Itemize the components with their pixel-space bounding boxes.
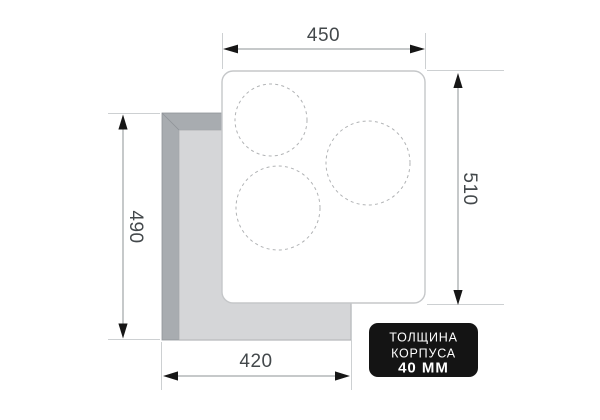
- dimension-label-top: 450: [307, 25, 340, 46]
- dimension-label-left: 490: [125, 210, 146, 243]
- arrowhead-down-icon: [453, 290, 462, 305]
- cooktop-panel: [222, 71, 425, 303]
- diagram-svg: 450 510 490 420 ТОЛЩИНА КОРПУСА: [0, 0, 600, 420]
- thickness-badge: ТОЛЩИНА КОРПУСА 40 ММ: [369, 323, 478, 377]
- arrowhead-up-icon: [453, 73, 462, 88]
- arrowhead-right-icon: [335, 371, 350, 380]
- arrowhead-left-icon: [223, 45, 238, 54]
- arrowhead-up-icon: [118, 115, 127, 130]
- dimension-top: 450: [223, 25, 425, 53]
- dimension-label-right: 510: [459, 172, 480, 205]
- dimension-left: 490: [118, 115, 146, 339]
- thickness-badge-line3: 40 ММ: [398, 360, 449, 377]
- dimension-label-bottom: 420: [239, 351, 272, 372]
- arrowhead-down-icon: [118, 324, 127, 339]
- dimension-right: 510: [453, 73, 480, 305]
- thickness-badge-line1: ТОЛЩИНА: [389, 331, 458, 345]
- thickness-badge-line2: КОРПУСА: [391, 347, 456, 361]
- arrowhead-left-icon: [163, 371, 178, 380]
- cooktop-installation-diagram: 450 510 490 420 ТОЛЩИНА КОРПУСА: [0, 0, 600, 420]
- dimension-bottom: 420: [163, 351, 350, 381]
- arrowhead-right-icon: [410, 45, 425, 54]
